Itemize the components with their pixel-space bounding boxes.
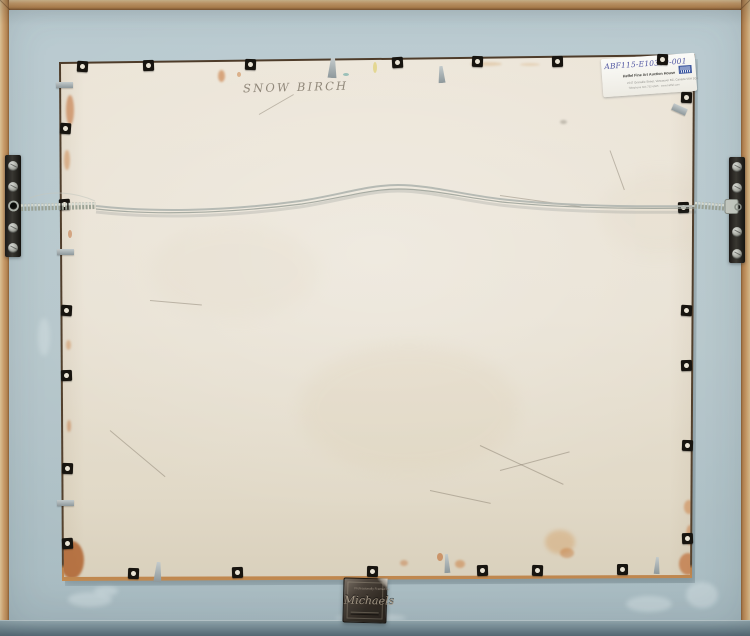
canvas-clip	[231, 566, 242, 577]
stain	[237, 72, 241, 77]
stain	[343, 73, 349, 76]
stain	[560, 548, 574, 558]
mat-scuff	[94, 586, 118, 596]
canvas-clip	[680, 304, 692, 316]
canvas-clip	[142, 59, 153, 70]
canvas-clip	[531, 564, 542, 575]
label-lot-code: ABF115-E10309-001	[604, 56, 687, 71]
scratch	[430, 490, 491, 504]
canvas-clip	[677, 201, 688, 212]
canvas-clip	[391, 56, 403, 68]
canvas-clip	[551, 55, 562, 66]
canvas-clip	[244, 58, 255, 69]
bracket-wire-hole	[733, 204, 741, 212]
screw-icon	[732, 183, 742, 193]
canvas-clip	[366, 565, 377, 576]
stain	[68, 230, 72, 238]
auction-house-label: ABF115-E10309-001 Heffel Fine Art Auctio…	[601, 53, 697, 97]
hanging-bracket-left	[5, 155, 21, 257]
barcode-icon	[678, 65, 692, 74]
canvas-board-edge: SNOW BIRCH	[59, 54, 695, 581]
stain	[400, 560, 408, 566]
canvas-clip	[60, 304, 72, 316]
stain	[67, 420, 71, 432]
glazing-tab	[56, 82, 73, 88]
hanging-bracket-right	[729, 157, 745, 263]
stain	[64, 150, 70, 170]
screw-icon	[732, 162, 742, 172]
stain	[437, 553, 443, 561]
mat-scuff	[626, 596, 672, 612]
canvas-clip	[476, 564, 487, 575]
framer-plaque: Professionally Framed by Michaels	[342, 577, 387, 623]
canvas-clip	[681, 532, 692, 543]
canvas-clip	[59, 122, 71, 134]
scratch	[500, 451, 570, 471]
canvas-clip	[617, 564, 628, 575]
canvas-clip	[656, 53, 667, 64]
frame-rail-top	[0, 0, 750, 10]
canvas-board-back: SNOW BIRCH	[59, 54, 695, 581]
mat-scuff	[686, 582, 718, 608]
label-company-name: Heffel Fine Art Auction House	[620, 71, 678, 79]
stain	[373, 62, 377, 73]
plaque-text-line2: Michaels	[344, 593, 386, 607]
plaque-text-line1: Professionally Framed by	[354, 587, 376, 591]
stain	[299, 344, 519, 474]
screw-icon	[8, 223, 18, 233]
stain	[66, 95, 74, 125]
screw-icon	[8, 182, 18, 192]
scratch	[110, 430, 166, 477]
canvas-clip	[60, 369, 71, 380]
screw-icon	[8, 243, 18, 253]
stain	[66, 340, 71, 350]
mat-scuff	[38, 318, 50, 356]
canvas-clip	[61, 537, 73, 549]
framed-artwork-back-photo: SNOW BIRCH ABF115-E10309-001 Heffel Fine…	[0, 0, 750, 636]
stain	[218, 70, 225, 82]
glazing-tab	[57, 500, 74, 506]
scratch	[259, 94, 294, 115]
screw-icon	[732, 227, 742, 237]
scratch	[500, 195, 581, 207]
frame-rail-left	[0, 0, 9, 636]
canvas-clip	[61, 462, 72, 473]
canvas-clip	[681, 439, 692, 450]
canvas-clip	[76, 60, 88, 72]
stain	[149, 224, 319, 319]
stain	[560, 120, 567, 124]
screw-icon	[8, 161, 18, 171]
canvas-clip	[471, 55, 482, 66]
handwritten-title: SNOW BIRCH	[243, 79, 349, 96]
frame-rail-right	[741, 0, 750, 636]
canvas-clip	[58, 198, 70, 210]
label-contact: Telephone 604 732-6505 · www.heffel.com	[629, 84, 671, 90]
glazing-tab	[57, 249, 74, 255]
bracket-wire-hole	[9, 201, 17, 209]
screw-icon	[732, 249, 742, 259]
canvas-clip	[127, 567, 138, 578]
canvas-clip	[680, 359, 691, 370]
stain	[520, 63, 540, 66]
stain	[455, 560, 465, 568]
canvas-clip	[680, 91, 691, 102]
